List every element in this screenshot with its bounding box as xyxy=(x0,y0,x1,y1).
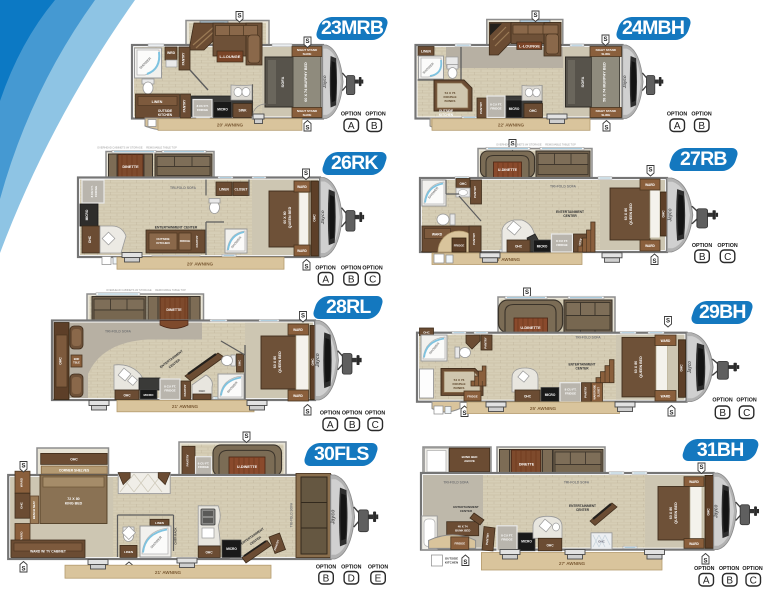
svg-text:OHC: OHC xyxy=(423,330,430,334)
svg-text:B: B xyxy=(726,576,733,587)
svg-text:PANTRY: PANTRY xyxy=(583,386,587,397)
svg-text:WARD: WARD xyxy=(20,477,24,487)
svg-text:OPTION: OPTION xyxy=(712,398,732,404)
svg-text:WARD: WARD xyxy=(297,249,307,253)
svg-text:CENTER: CENTER xyxy=(575,367,589,371)
svg-text:BENCH SEAT: BENCH SEAT xyxy=(32,501,36,519)
svg-text:B: B xyxy=(348,275,355,286)
svg-text:OHC: OHC xyxy=(459,182,467,186)
svg-text:OPTION: OPTION xyxy=(341,112,361,118)
svg-text:PANTRY: PANTRY xyxy=(183,385,187,397)
svg-text:KITCHEN: KITCHEN xyxy=(158,113,173,117)
svg-text:WARD: WARD xyxy=(661,394,671,398)
svg-text:TRI-FOLD SOFA: TRI-FOLD SOFA xyxy=(564,481,590,485)
svg-text:WARD: WARD xyxy=(645,183,655,187)
svg-text:LINEN: LINEN xyxy=(219,188,229,192)
svg-text:72 X 80: 72 X 80 xyxy=(67,497,79,501)
svg-text:OPTION: OPTION xyxy=(694,566,714,572)
svg-text:25' AWNING: 25' AWNING xyxy=(530,406,557,411)
svg-text:20' AWNING: 20' AWNING xyxy=(217,123,244,128)
svg-text:B: B xyxy=(719,408,726,419)
svg-text:MICRO: MICRO xyxy=(226,547,237,551)
svg-text:OHC: OHC xyxy=(20,501,24,509)
svg-text:21' AWNING: 21' AWNING xyxy=(155,570,182,575)
svg-text:FRIDGE: FRIDGE xyxy=(180,239,191,243)
svg-text:KING BED: KING BED xyxy=(65,502,83,506)
svg-text:OPTION: OPTION xyxy=(362,266,382,272)
svg-text:TRI-FOLD SOFA: TRI-FOLD SOFA xyxy=(575,336,601,340)
svg-text:21' AWNING: 21' AWNING xyxy=(172,404,199,409)
svg-text:OHC: OHC xyxy=(662,210,666,218)
svg-text:OHC: OHC xyxy=(59,357,63,365)
svg-text:WARD: WARD xyxy=(645,244,655,248)
svg-text:BUNK BED: BUNK BED xyxy=(455,528,470,532)
svg-text:OHC: OHC xyxy=(88,235,92,243)
svg-text:SOFA: SOFA xyxy=(280,76,285,87)
svg-text:OHC: OHC xyxy=(546,543,554,547)
svg-text:PANTRY: PANTRY xyxy=(484,337,488,348)
svg-text:60 X 80: 60 X 80 xyxy=(273,356,277,368)
svg-text:OPTION: OPTION xyxy=(691,112,711,118)
svg-text:QUEEN BED: QUEEN BED xyxy=(674,502,678,524)
svg-text:L-LOUNGE: L-LOUNGE xyxy=(519,43,540,48)
svg-text:LINEN: LINEN xyxy=(155,521,164,525)
svg-text:FRIDGE: FRIDGE xyxy=(454,244,465,248)
svg-text:U-DINETTE: U-DINETTE xyxy=(520,326,541,330)
svg-text:60 X 80: 60 X 80 xyxy=(669,507,673,519)
svg-text:U-DINETTE: U-DINETTE xyxy=(237,465,258,469)
svg-text:OPTION: OPTION xyxy=(365,112,385,118)
svg-text:MICRO: MICRO xyxy=(509,107,520,111)
svg-text:C: C xyxy=(724,252,731,263)
svg-text:A: A xyxy=(322,275,329,286)
svg-text:OHC: OHC xyxy=(524,395,532,399)
svg-text:OPTION: OPTION xyxy=(717,243,737,249)
svg-text:BUNKS: BUNKS xyxy=(453,386,464,390)
svg-text:TRI-FOLD SOFA: TRI-FOLD SOFA xyxy=(105,330,132,334)
svg-text:WARD: WARD xyxy=(661,339,671,343)
svg-text:A: A xyxy=(703,576,710,587)
svg-text:KITCHEN: KITCHEN xyxy=(439,113,454,117)
svg-text:WARD: WARD xyxy=(20,531,24,541)
svg-text:OHC: OHC xyxy=(238,360,242,366)
svg-text:B: B xyxy=(698,121,705,132)
svg-text:SLIDE: SLIDE xyxy=(601,113,610,117)
svg-text:OHC: OHC xyxy=(598,540,606,544)
svg-text:C: C xyxy=(750,576,757,587)
svg-text:OHC: OHC xyxy=(123,394,131,398)
svg-text:58 X 74 MURPHY BED: 58 X 74 MURPHY BED xyxy=(603,62,607,102)
svg-text:TRI-FOLD SOFA: TRI-FOLD SOFA xyxy=(443,481,469,485)
svg-text:FRIDGE: FRIDGE xyxy=(501,537,512,541)
svg-text:DINETTE: DINETTE xyxy=(519,463,535,467)
svg-text:QUEEN BED: QUEEN BED xyxy=(639,356,643,378)
svg-text:FRIDGE: FRIDGE xyxy=(197,108,208,112)
svg-text:CNTR RACK: CNTR RACK xyxy=(174,526,178,544)
svg-text:SOFA: SOFA xyxy=(580,76,585,87)
svg-text:DINETTE: DINETTE xyxy=(122,165,139,169)
svg-text:FRIDGE: FRIDGE xyxy=(565,391,576,395)
svg-text:CENTER: CENTER xyxy=(576,508,590,512)
svg-text:MICRO: MICRO xyxy=(144,393,155,397)
svg-text:PANTRY: PANTRY xyxy=(183,99,187,113)
svg-text:CLOSET: CLOSET xyxy=(598,387,601,398)
svg-text:OVERHEAD CABINETS W/ STORAGE: OVERHEAD CABINETS W/ STORAGE REMOVABLE T… xyxy=(106,288,186,292)
svg-text:WARD: WARD xyxy=(689,542,699,546)
svg-text:OPTION: OPTION xyxy=(320,411,340,417)
svg-text:DINETTE: DINETTE xyxy=(166,308,182,312)
svg-text:KITCHEN: KITCHEN xyxy=(445,560,458,564)
svg-text:FRIDGE: FRIDGE xyxy=(455,542,466,546)
svg-text:OPTION: OPTION xyxy=(342,411,362,417)
svg-text:WARD: WARD xyxy=(293,328,303,332)
svg-text:QUEEN BED: QUEEN BED xyxy=(288,206,292,228)
svg-text:MICRO: MICRO xyxy=(537,245,548,249)
svg-text:B: B xyxy=(349,420,356,431)
svg-text:C: C xyxy=(743,408,750,419)
svg-text:OHC: OHC xyxy=(707,508,711,516)
svg-text:ABOVE: ABOVE xyxy=(464,459,475,463)
svg-text:OPTION: OPTION xyxy=(742,566,762,572)
svg-text:PANTRY: PANTRY xyxy=(472,233,476,245)
svg-text:TBLE: TBLE xyxy=(73,361,80,365)
svg-text:PANTRY: PANTRY xyxy=(182,52,186,66)
svg-text:CENTER: CENTER xyxy=(460,509,473,513)
svg-text:KITCHEN: KITCHEN xyxy=(156,241,169,245)
svg-text:OPTION: OPTION xyxy=(315,266,335,272)
svg-text:WARD: WARD xyxy=(689,480,699,484)
svg-text:CORNER SHELVES: CORNER SHELVES xyxy=(59,469,90,473)
svg-text:A: A xyxy=(674,121,681,132)
svg-text:WARD: WARD xyxy=(297,185,307,189)
svg-text:OHC: OHC xyxy=(680,364,684,372)
svg-text:MICRO: MICRO xyxy=(521,540,532,544)
svg-text:FRIDGE: FRIDGE xyxy=(467,395,478,399)
svg-text:OPTION: OPTION xyxy=(365,411,385,417)
svg-text:END: END xyxy=(74,357,80,361)
svg-text:ENTERTAINMENT CENTER: ENTERTAINMENT CENTER xyxy=(155,226,198,230)
svg-text:OHC: OHC xyxy=(529,109,537,113)
svg-text:BUNKS: BUNKS xyxy=(444,99,455,103)
svg-text:60 X 74 MURPHY BED: 60 X 74 MURPHY BED xyxy=(304,62,308,102)
svg-text:OPTION: OPTION xyxy=(368,565,388,571)
svg-text:U-DINETTE: U-DINETTE xyxy=(498,168,518,172)
svg-text:WARD: WARD xyxy=(432,233,443,237)
svg-text:OHC: OHC xyxy=(205,551,213,555)
svg-text:OVERHEAD CABINETS W/ STORAGE: OVERHEAD CABINETS W/ STORAGE REMOVABLE T… xyxy=(97,146,177,150)
svg-text:PANTRY: PANTRY xyxy=(473,186,477,198)
svg-text:OPTION: OPTION xyxy=(736,398,756,404)
svg-text:C: C xyxy=(372,420,379,431)
svg-text:OHC: OHC xyxy=(70,457,78,461)
svg-text:OHC: OHC xyxy=(515,245,523,249)
svg-text:SLIDE: SLIDE xyxy=(303,113,312,117)
svg-text:MICRO: MICRO xyxy=(545,393,556,397)
svg-text:LINEN: LINEN xyxy=(152,100,163,104)
svg-text:SLIDE: SLIDE xyxy=(303,52,312,56)
svg-text:SLIDE: SLIDE xyxy=(601,52,610,56)
svg-text:TRI-FOLD SOFA: TRI-FOLD SOFA xyxy=(290,502,294,527)
svg-text:WARD: WARD xyxy=(293,394,303,398)
svg-text:OPTION: OPTION xyxy=(341,266,361,272)
svg-text:OPTION: OPTION xyxy=(692,243,712,249)
svg-text:60 X 80: 60 X 80 xyxy=(624,208,628,220)
svg-text:PANTRY: PANTRY xyxy=(479,102,483,114)
svg-text:A: A xyxy=(348,121,355,132)
svg-text:QUEEN BED: QUEEN BED xyxy=(278,351,282,373)
svg-text:PANTRY: PANTRY xyxy=(186,455,190,467)
svg-text:60 X 80: 60 X 80 xyxy=(283,211,287,223)
svg-text:E: E xyxy=(375,574,382,585)
svg-text:SINK: SINK xyxy=(238,109,247,113)
svg-text:FRIDGE: FRIDGE xyxy=(198,465,209,469)
svg-text:WARDROBE: WARDROBE xyxy=(594,384,597,399)
svg-text:FRIDGE: FRIDGE xyxy=(164,388,175,392)
svg-text:WRD: WRD xyxy=(167,51,176,55)
svg-text:LINEN: LINEN xyxy=(421,50,432,54)
svg-text:OPTION: OPTION xyxy=(667,112,687,118)
svg-text:OPTION: OPTION xyxy=(341,565,361,571)
svg-text:MICRO: MICRO xyxy=(85,209,89,220)
svg-text:CLOSET: CLOSET xyxy=(235,188,248,192)
svg-text:OPTION: OPTION xyxy=(316,565,336,571)
svg-text:MICRO: MICRO xyxy=(217,108,228,112)
svg-text:B: B xyxy=(371,121,378,132)
svg-text:OHC: OHC xyxy=(199,389,207,393)
svg-text:WARD W/ TV CABINET: WARD W/ TV CABINET xyxy=(30,550,66,554)
svg-text:QUEEN BED: QUEEN BED xyxy=(629,203,633,225)
svg-text:TRI-FOLD SOFA: TRI-FOLD SOFA xyxy=(170,186,197,190)
svg-text:TRI-FOLD SOFA: TRI-FOLD SOFA xyxy=(550,185,577,189)
svg-text:FRIDGE: FRIDGE xyxy=(94,186,98,197)
svg-text:20' AWNING: 20' AWNING xyxy=(187,261,214,266)
svg-text:LINEN: LINEN xyxy=(124,550,133,554)
svg-text:OHC: OHC xyxy=(313,214,317,222)
svg-text:FRIDGE: FRIDGE xyxy=(490,106,501,110)
svg-text:CENTER: CENTER xyxy=(563,214,577,218)
svg-text:B: B xyxy=(323,574,330,585)
svg-text:60 X 80: 60 X 80 xyxy=(634,361,638,373)
svg-text:27' AWNING: 27' AWNING xyxy=(559,561,586,566)
svg-text:22' AWNING: 22' AWNING xyxy=(498,123,525,128)
svg-text:B: B xyxy=(699,252,706,263)
svg-text:PANTRY: PANTRY xyxy=(195,236,199,248)
svg-text:A: A xyxy=(327,420,334,431)
svg-text:OVERHEAD CABINETS W/ STORAGE: OVERHEAD CABINETS W/ STORAGE REMOVABLE T… xyxy=(496,143,576,147)
svg-text:C: C xyxy=(369,275,376,286)
svg-text:D: D xyxy=(348,574,355,585)
svg-text:FRIDGE: FRIDGE xyxy=(556,243,567,247)
svg-text:L-LOUNGE: L-LOUNGE xyxy=(220,54,241,59)
svg-text:OPTION: OPTION xyxy=(719,566,739,572)
